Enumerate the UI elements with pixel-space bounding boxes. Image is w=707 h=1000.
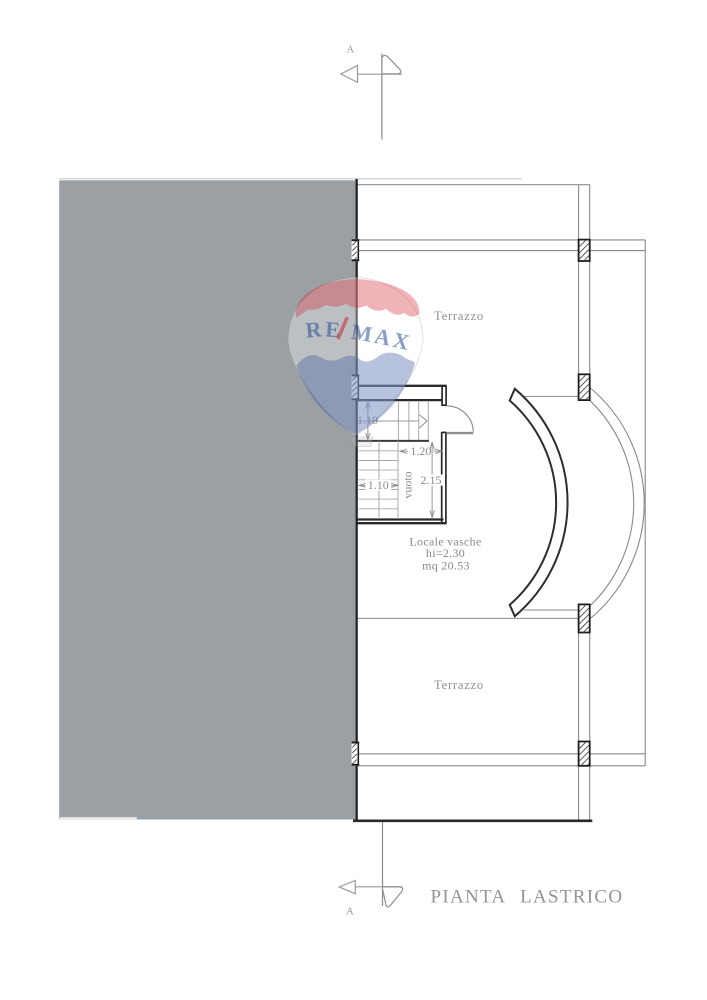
svg-text:PIANTA: PIANTA bbox=[431, 887, 507, 908]
svg-text:LASTRICO: LASTRICO bbox=[520, 887, 623, 908]
svg-text:Terrazzo: Terrazzo bbox=[434, 678, 484, 692]
svg-text:mq 20.53: mq 20.53 bbox=[422, 558, 470, 572]
svg-text:1.20: 1.20 bbox=[410, 444, 431, 458]
svg-text:2.15: 2.15 bbox=[421, 473, 442, 487]
svg-text:Terrazzo: Terrazzo bbox=[434, 309, 484, 323]
svg-text:vuoto: vuoto bbox=[401, 471, 415, 498]
svg-text:A: A bbox=[347, 45, 355, 56]
svg-text:A: A bbox=[346, 906, 354, 918]
svg-text:1.10: 1.10 bbox=[368, 478, 389, 492]
